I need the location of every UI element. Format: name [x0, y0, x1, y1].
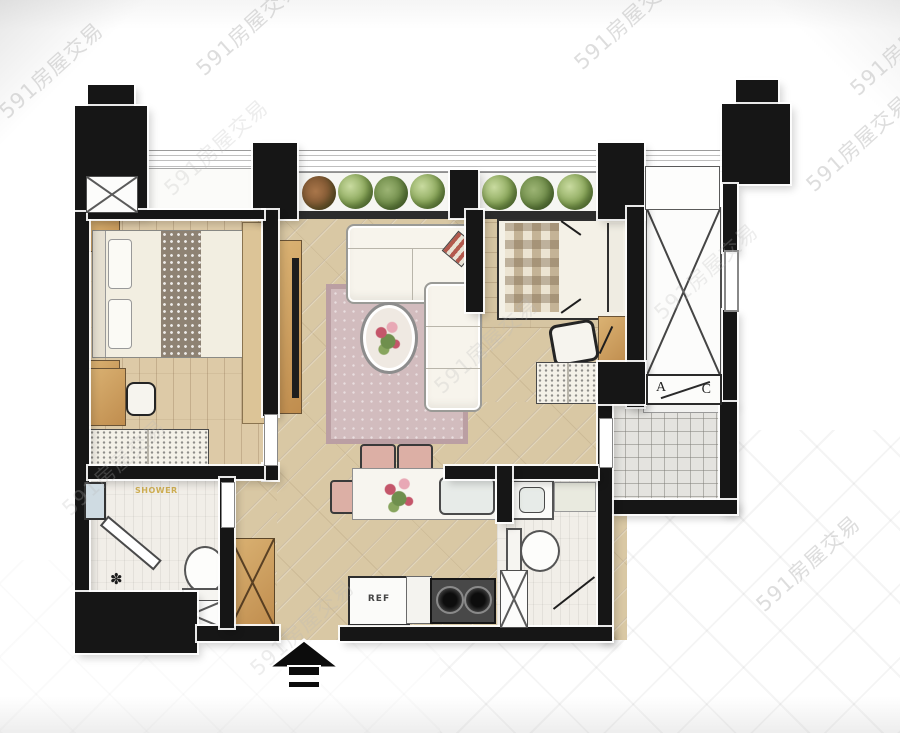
refrigerator: REF — [348, 576, 410, 626]
duvet-fold-line — [561, 298, 582, 313]
bay-window-seat — [147, 168, 255, 212]
kitchen-counter — [406, 576, 432, 624]
island-sink — [439, 477, 495, 515]
wall-balcony-south — [610, 500, 737, 514]
burner-icon — [436, 586, 464, 614]
bathroom-sink — [510, 480, 554, 520]
toilet — [520, 530, 560, 572]
pillow — [108, 299, 132, 349]
master-dresser — [88, 429, 209, 468]
sofa-cushion-line — [426, 368, 480, 369]
wall-bath2-west — [497, 466, 512, 522]
wall-kitchen-south — [340, 627, 612, 641]
pillow — [108, 239, 132, 289]
wall-master-east-stub — [263, 464, 278, 480]
watermark: 591房屋交易 — [799, 88, 900, 198]
ac-label-a: A — [656, 380, 666, 396]
entry-wardrobe — [230, 538, 275, 627]
wall-living-bedroom-stub — [466, 210, 483, 312]
stove — [430, 578, 496, 624]
plant-icon — [338, 174, 373, 209]
bedroom-chair — [548, 318, 601, 367]
watermark: 591房屋交易 — [749, 508, 866, 618]
dresser-divider — [147, 430, 149, 467]
plant-icon — [302, 176, 336, 210]
bathroom-shelf — [554, 482, 596, 512]
wall-right-lower — [720, 402, 737, 512]
bed-headboard — [607, 223, 623, 312]
duvet-fold-line — [561, 220, 582, 235]
bathroom-window — [84, 482, 106, 520]
watermark: 591房屋交易 — [567, 0, 684, 76]
wall-master-east — [263, 210, 278, 416]
burner-icon — [464, 586, 492, 614]
floor-drain-icon: ✽ — [110, 570, 123, 588]
plant-icon — [374, 176, 408, 210]
plant-icon — [520, 176, 554, 210]
sofa-cushion-line — [426, 326, 480, 327]
wall-column-topright — [722, 104, 790, 184]
master-bedroom-door — [264, 414, 278, 466]
watermark: 591房屋交易 — [189, 0, 306, 82]
bed-headboard — [93, 231, 106, 357]
kitchen-tall-cabinet — [500, 570, 528, 628]
ac-platform-box: A C — [646, 374, 722, 405]
flower-centerpiece-icon — [377, 471, 421, 517]
plant-icon — [557, 174, 593, 210]
entrance-arrow-icon — [262, 636, 346, 692]
floor-plan-image: REF SHOWER ✽ A C — [0, 0, 900, 733]
wall-bath-north — [88, 466, 264, 479]
wall-right-mid — [723, 310, 737, 404]
pen-icon — [599, 326, 613, 354]
desk-chair — [126, 382, 156, 416]
refrigerator-label: REF — [350, 594, 408, 604]
plant-icon — [410, 174, 445, 209]
column-vent-box — [86, 176, 138, 213]
master-desk — [86, 368, 126, 426]
wall-column-balcony-left — [253, 143, 297, 219]
sofa-cushion-line — [412, 248, 413, 300]
bed-runner — [161, 231, 201, 357]
sink-basin — [519, 487, 545, 513]
utility-balcony-floor — [612, 405, 720, 510]
shower-label: SHOWER — [135, 486, 178, 495]
ac-label-c: C — [702, 382, 711, 398]
master-bed — [92, 230, 244, 358]
right-side-door — [724, 250, 739, 312]
elevator-shaft — [645, 207, 722, 377]
wall-mass-bottomleft — [75, 592, 197, 653]
plant-icon — [482, 175, 517, 210]
bedroom-dresser — [536, 362, 600, 404]
dresser-divider — [567, 363, 569, 403]
shaft-top-box — [645, 166, 720, 210]
wall-right-upper — [723, 184, 737, 252]
flower-centerpiece-icon — [371, 315, 405, 359]
wall-column-topright-cap — [736, 80, 778, 106]
balcony-door — [599, 418, 613, 468]
master-wardrobe — [242, 222, 265, 424]
wall-left — [75, 212, 89, 598]
coffee-table — [360, 302, 418, 374]
watermark: 591房屋交易 — [843, 0, 900, 102]
wall-shaft-corner — [598, 362, 645, 404]
bed-blanket — [505, 223, 559, 312]
second-bed — [497, 219, 631, 320]
wall-bath2-north — [445, 466, 598, 479]
bathroom-door — [221, 482, 235, 528]
tv-icon — [292, 258, 299, 398]
small-desk — [598, 316, 628, 364]
